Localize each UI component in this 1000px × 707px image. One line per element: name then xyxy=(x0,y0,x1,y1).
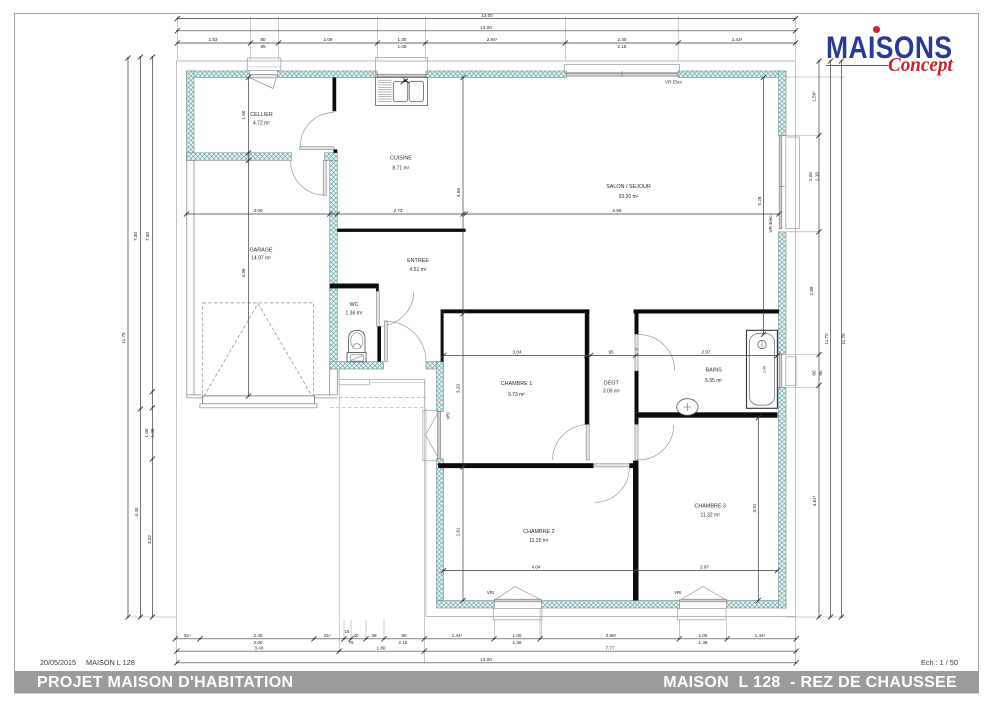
svg-text:VR Elec: VR Elec xyxy=(768,215,774,233)
svg-text:1.441: 1.441 xyxy=(452,633,463,638)
svg-text:511: 511 xyxy=(184,633,191,638)
svg-text:WC: WC xyxy=(350,302,359,308)
svg-text:2.97: 2.97 xyxy=(700,565,709,570)
svg-text:VRI: VRI xyxy=(487,590,494,595)
svg-text:3.20: 3.20 xyxy=(456,384,461,393)
svg-text:VRI: VRI xyxy=(674,590,681,595)
svg-text:11.35 m²: 11.35 m² xyxy=(529,538,549,544)
svg-text:DEGT: DEGT xyxy=(604,381,620,387)
svg-text:4.04: 4.04 xyxy=(532,565,541,570)
svg-text:2.941: 2.941 xyxy=(487,37,498,42)
svg-text:GARAGE: GARAGE xyxy=(249,248,272,254)
svg-text:1.50: 1.50 xyxy=(241,110,246,119)
svg-text:1.53: 1.53 xyxy=(209,37,218,42)
svg-text:CHAMBRE 2: CHAMBRE 2 xyxy=(523,529,554,535)
svg-text:15: 15 xyxy=(345,629,350,634)
svg-text:14.97 m²: 14.97 m² xyxy=(251,255,271,261)
svg-text:1.00: 1.00 xyxy=(513,633,522,638)
svg-text:3.81: 3.81 xyxy=(752,503,757,512)
svg-text:7.77: 7.77 xyxy=(606,645,615,650)
svg-text:95: 95 xyxy=(608,350,614,355)
svg-text:BAINS: BAINS xyxy=(706,367,723,373)
svg-text:3.09 m²: 3.09 m² xyxy=(603,389,620,395)
svg-text:6.56: 6.56 xyxy=(613,208,622,213)
svg-text:4.51 m²: 4.51 m² xyxy=(410,267,427,273)
svg-text:2.15: 2.15 xyxy=(814,172,819,181)
svg-text:4.72 m²: 4.72 m² xyxy=(253,121,270,127)
svg-text:7.30: 7.30 xyxy=(133,232,138,241)
svg-text:3.04: 3.04 xyxy=(513,350,522,355)
svg-text:2.97: 2.97 xyxy=(702,350,711,355)
svg-text:ENTREE: ENTREE xyxy=(407,258,429,264)
svg-text:80: 80 xyxy=(812,370,817,376)
svg-text:4.88: 4.88 xyxy=(456,188,461,197)
svg-text:1.80: 1.80 xyxy=(377,645,386,650)
svg-text:1.36 m²: 1.36 m² xyxy=(346,311,363,317)
svg-text:1.00: 1.00 xyxy=(398,37,407,42)
svg-text:1.36: 1.36 xyxy=(699,640,708,645)
svg-text:2.73: 2.73 xyxy=(394,208,403,213)
svg-text:5: 5 xyxy=(636,348,638,352)
svg-text:VR Elec: VR Elec xyxy=(665,80,683,86)
svg-text:511: 511 xyxy=(324,633,331,638)
svg-text:9.73 m²: 9.73 m² xyxy=(508,392,525,398)
svg-text:1.40: 1.40 xyxy=(763,366,767,373)
svg-text:4.61¹: 4.61¹ xyxy=(812,495,817,506)
svg-text:3.00: 3.00 xyxy=(254,208,263,213)
svg-text:2.09: 2.09 xyxy=(324,37,333,42)
svg-text:2.15: 2.15 xyxy=(618,44,627,49)
svg-text:2.00: 2.00 xyxy=(808,172,813,181)
svg-text:1.00: 1.00 xyxy=(699,633,708,638)
svg-text:CELLIER: CELLIER xyxy=(250,112,273,118)
svg-text:90: 90 xyxy=(401,633,407,638)
svg-text:SALON / SEJOUR: SALON / SEJOUR xyxy=(606,184,651,190)
svg-text:1.441: 1.441 xyxy=(755,633,766,638)
svg-text:2.881: 2.881 xyxy=(606,633,617,638)
svg-text:CHAMBRE 3: CHAMBRE 3 xyxy=(694,504,725,510)
svg-text:11.32 m²: 11.32 m² xyxy=(701,513,721,519)
svg-text:3.43: 3.43 xyxy=(255,645,264,650)
svg-text:1.00: 1.00 xyxy=(144,428,149,437)
svg-text:4.99: 4.99 xyxy=(241,268,246,277)
svg-text:13.00: 13.00 xyxy=(480,25,492,30)
svg-text:33.20 m²: 33.20 m² xyxy=(619,194,639,200)
svg-text:7.30: 7.30 xyxy=(145,232,150,241)
svg-text:2.81: 2.81 xyxy=(456,527,461,536)
svg-text:11.70: 11.70 xyxy=(841,333,846,345)
svg-text:2.00: 2.00 xyxy=(254,640,263,645)
svg-text:1.59¹: 1.59¹ xyxy=(812,91,817,102)
svg-text:2.40: 2.40 xyxy=(254,633,263,638)
svg-text:5.28: 5.28 xyxy=(757,196,762,205)
svg-text:2.89: 2.89 xyxy=(809,286,814,295)
svg-text:2.431: 2.431 xyxy=(732,37,743,42)
svg-text:CHAMBRE 1: CHAMBRE 1 xyxy=(501,381,532,387)
svg-text:2.40: 2.40 xyxy=(618,37,627,42)
svg-text:95: 95 xyxy=(260,44,266,49)
svg-text:95: 95 xyxy=(818,370,823,376)
svg-text:1.05: 1.05 xyxy=(398,44,407,49)
svg-text:11.70: 11.70 xyxy=(824,333,829,345)
svg-text:13.00: 13.00 xyxy=(481,13,493,18)
svg-text:38: 38 xyxy=(371,633,377,638)
svg-text:4.40: 4.40 xyxy=(134,507,139,516)
svg-text:13.00: 13.00 xyxy=(480,657,492,662)
svg-text:75: 75 xyxy=(348,640,354,645)
svg-text:3.32: 3.32 xyxy=(147,535,152,544)
svg-text:CUISINE: CUISINE xyxy=(390,156,412,162)
svg-text:2.15: 2.15 xyxy=(399,640,408,645)
svg-text:80: 80 xyxy=(260,37,266,42)
svg-text:1.36: 1.36 xyxy=(513,640,522,645)
svg-text:1.38: 1.38 xyxy=(150,428,155,437)
svg-text:5.35 m²: 5.35 m² xyxy=(705,378,722,384)
svg-text:8.71 m²: 8.71 m² xyxy=(392,166,409,172)
svg-text:40: 40 xyxy=(353,633,359,638)
svg-text:VRI: VRI xyxy=(446,412,451,419)
svg-text:11.70: 11.70 xyxy=(121,332,126,344)
